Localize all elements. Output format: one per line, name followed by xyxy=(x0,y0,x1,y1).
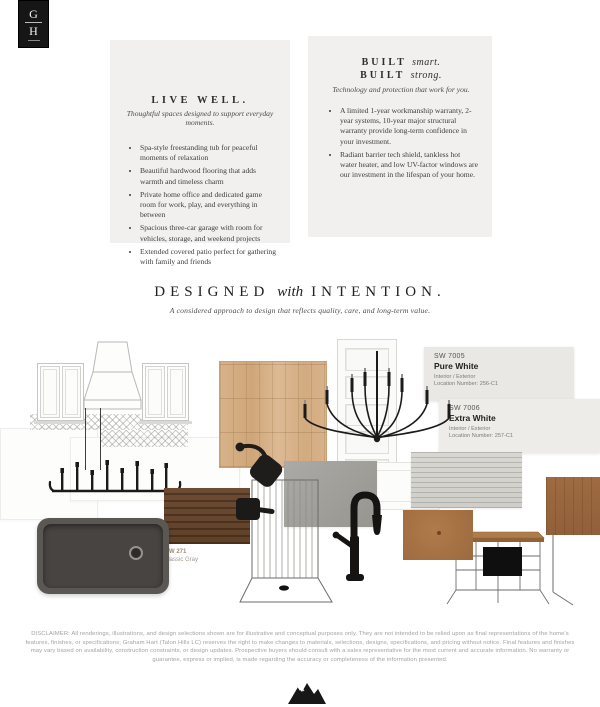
list-item: A limited 1-year workmanship warranty, 2… xyxy=(340,106,478,147)
shower-head-icon xyxy=(232,438,294,493)
live-well-card: LIVE WELL. Thoughtful spaces designed to… xyxy=(110,40,290,243)
paint-usage: Interior / Exterior xyxy=(449,426,600,433)
range-hood-sketch xyxy=(80,338,145,413)
sink-bowl xyxy=(43,524,163,588)
window-sill-sketch xyxy=(139,421,192,424)
built-title-line2: BUILT strong. xyxy=(324,69,478,82)
window-sill-sketch xyxy=(34,421,87,424)
list-item: Spacious three-car garage with room for … xyxy=(140,223,276,243)
herringbone-tile-sketch xyxy=(100,430,188,447)
shower-valve-icon xyxy=(232,494,278,526)
logo-divider xyxy=(25,22,42,23)
logo-est-mark xyxy=(28,40,40,41)
live-well-list: Spa-style freestanding tub for peaceful … xyxy=(124,143,276,267)
mountain-logo-icon xyxy=(286,680,328,706)
list-item: Spa-style freestanding tub for peaceful … xyxy=(140,143,276,163)
cabinet-knob xyxy=(437,531,441,535)
built-list: A limited 1-year workmanship warranty, 2… xyxy=(324,106,478,180)
built-word-smart: smart. xyxy=(412,57,440,68)
gh-brand-logo: G H xyxy=(18,0,49,48)
logo-letter-g: G xyxy=(29,8,38,20)
logo-letter-h: H xyxy=(29,25,38,37)
list-item: Radiant barrier tech shield, tankless ho… xyxy=(340,150,478,181)
list-item: Extended covered patio perfect for gathe… xyxy=(140,247,276,267)
sink-model: MW 271 xyxy=(164,548,198,556)
heading-part1: DESIGNED xyxy=(154,284,269,300)
chandelier-icon xyxy=(295,348,460,463)
paint-location: Location Number: 257-C1 xyxy=(449,433,600,440)
kitchen-faucet-icon xyxy=(323,486,389,584)
kitchen-sink-sample xyxy=(37,518,169,594)
built-label: BUILT xyxy=(362,57,407,68)
built-label: BUILT xyxy=(360,70,405,81)
built-subtitle: Technology and protection that work for … xyxy=(324,85,478,94)
right-wood-sample xyxy=(546,477,600,535)
designed-with-intention-heading: DESIGNED with INTENTION. A considered ap… xyxy=(0,283,600,315)
live-well-title: LIVE WELL. xyxy=(124,95,276,106)
paint-code: SW 7006 xyxy=(449,405,600,412)
built-title-line1: BUILT smart. xyxy=(324,56,478,69)
paint-chip-extra-white: SW 7006 Extra White Interior / Exterior … xyxy=(439,399,600,453)
built-word-strong: strong. xyxy=(411,70,442,81)
heading-part3: INTENTION. xyxy=(311,284,446,300)
window-sketch xyxy=(142,363,189,421)
disclaimer-text: DISCLAIMER: All renderings, illustration… xyxy=(25,630,575,664)
window-sketch xyxy=(37,363,84,421)
sink-drain xyxy=(129,546,143,560)
list-item: Beautiful hardwood flooring that adds wa… xyxy=(140,166,276,186)
live-well-subtitle: Thoughtful spaces designed to support ev… xyxy=(124,109,276,127)
paint-name: Extra White xyxy=(449,413,600,423)
brochure-page: G H LIVE WELL. Thoughtful spaces designe… xyxy=(0,0,600,707)
sink-spec-label: MW 271 Classic Gray xyxy=(164,548,198,564)
sink-color: Classic Gray xyxy=(164,556,198,564)
list-item: Private home office and dedicated game r… xyxy=(140,190,276,221)
brown-cabinet-sample xyxy=(403,510,473,560)
heading-subtitle: A considered approach to design that ref… xyxy=(0,306,600,315)
heading-part2: with xyxy=(277,284,303,300)
built-card: BUILT smart. BUILT strong. Technology an… xyxy=(308,36,492,237)
